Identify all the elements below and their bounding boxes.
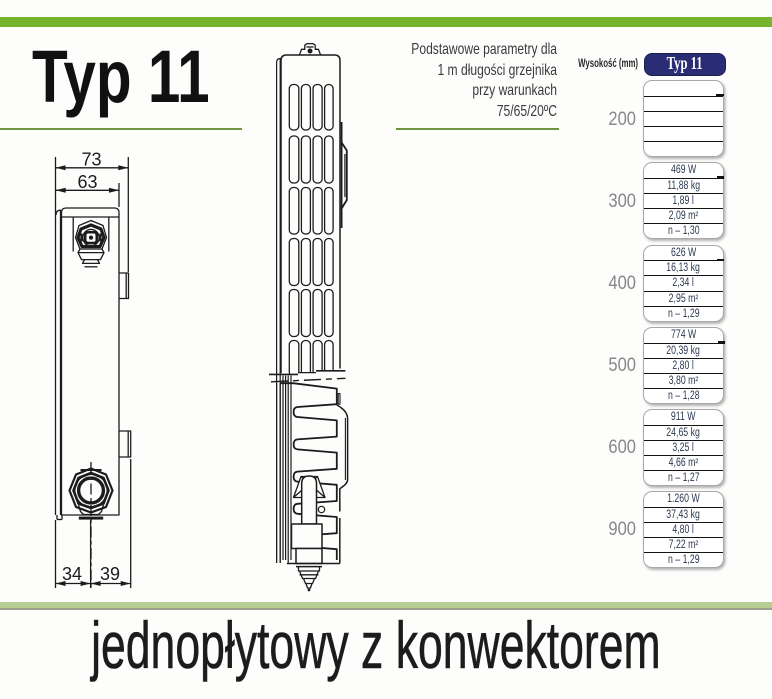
svg-text:39: 39 xyxy=(100,564,120,584)
svg-text:34: 34 xyxy=(62,564,82,584)
svg-text:63: 63 xyxy=(77,172,97,192)
svg-text:73: 73 xyxy=(81,150,101,170)
